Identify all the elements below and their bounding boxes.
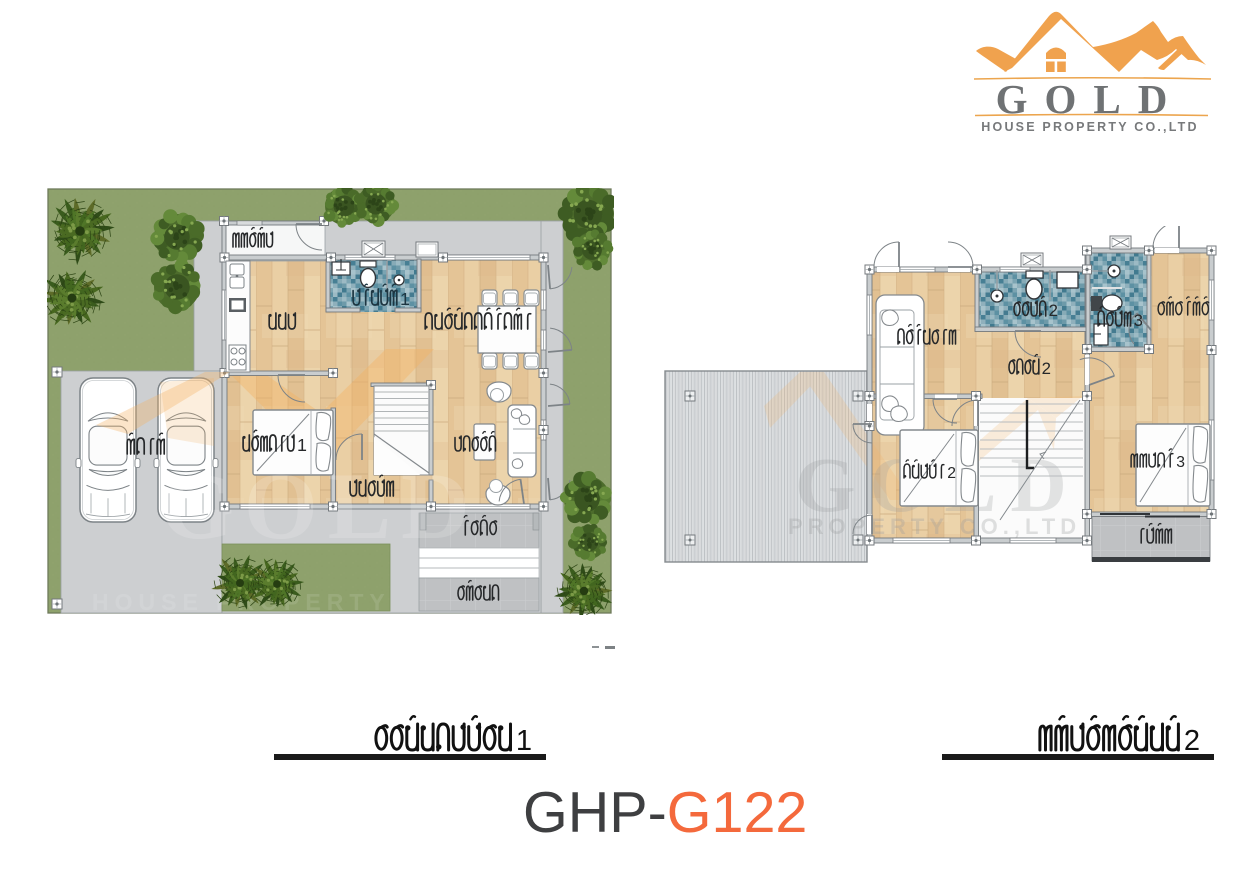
svg-text:2: 2	[1042, 359, 1051, 378]
svg-text:GOLD: GOLD	[996, 76, 1185, 122]
svg-text:2: 2	[1184, 725, 1200, 757]
svg-text:GOLD: GOLD	[160, 453, 480, 559]
svg-text:3: 3	[1176, 454, 1185, 471]
svg-text:GHP-G122: GHP-G122	[523, 781, 807, 845]
svg-text:3: 3	[1134, 311, 1143, 330]
svg-text:2: 2	[947, 465, 956, 482]
svg-text:1: 1	[297, 435, 307, 455]
svg-text:1: 1	[516, 725, 532, 757]
svg-text:PROPERTY CO.,LTD: PROPERTY CO.,LTD	[788, 514, 1081, 539]
svg-text:HOUSE PROPERTY CO.,LTD: HOUSE PROPERTY CO.,LTD	[981, 120, 1198, 134]
svg-text:1: 1	[400, 289, 410, 309]
svg-text:2: 2	[1049, 301, 1058, 320]
